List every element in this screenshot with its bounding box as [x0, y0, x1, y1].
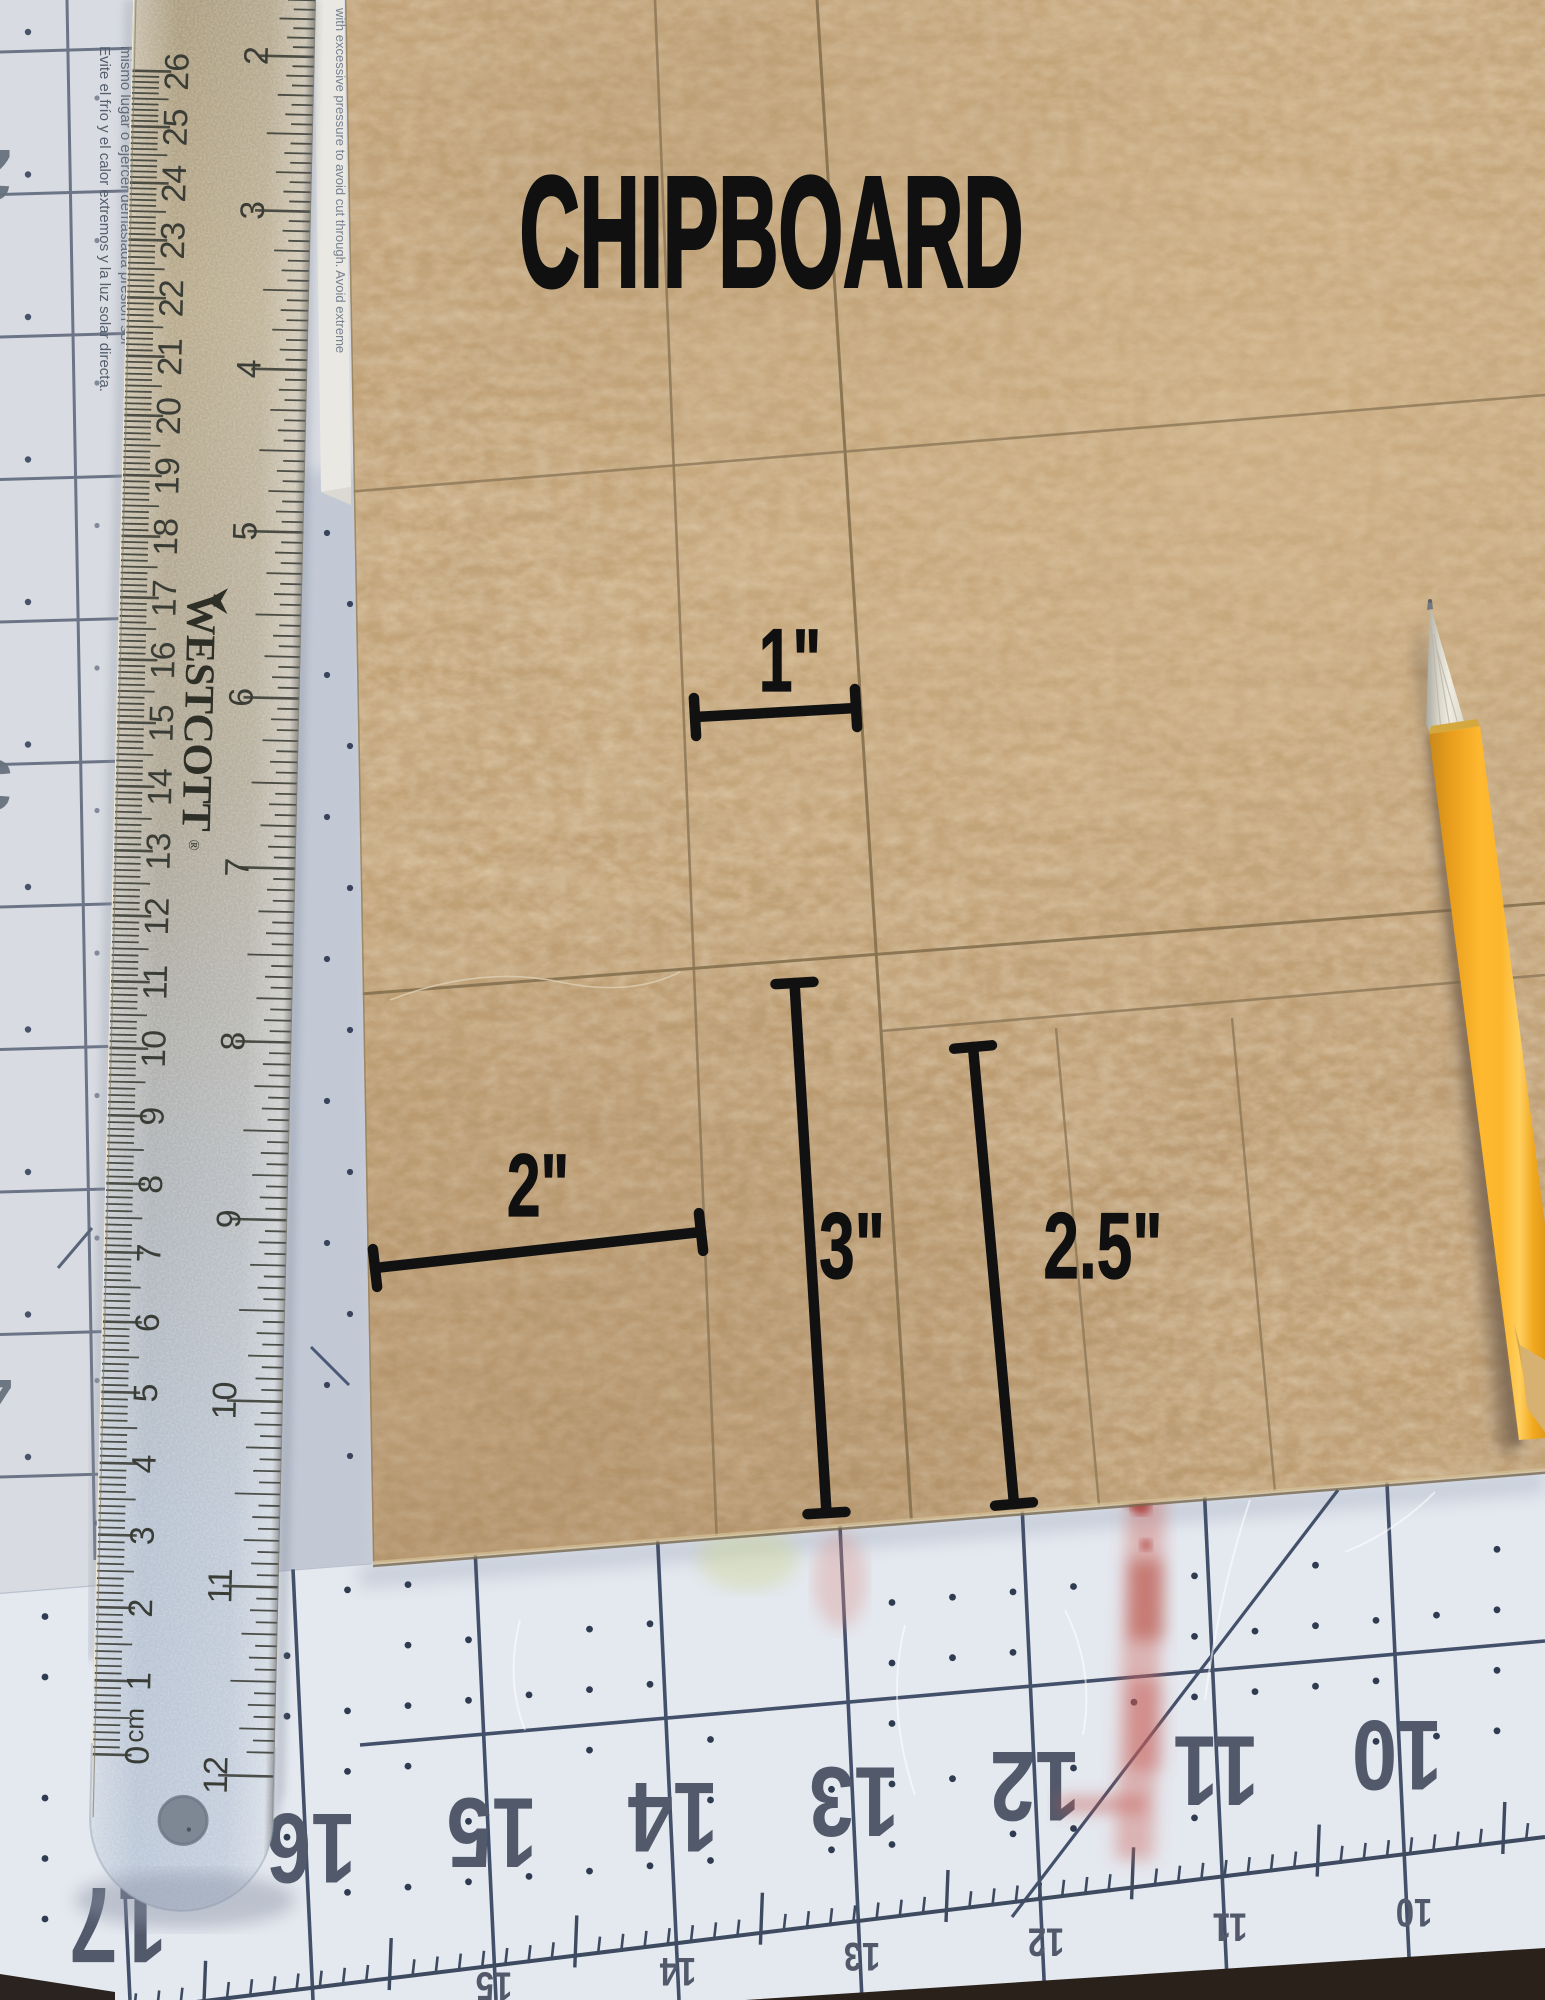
svg-text:7: 7: [130, 1243, 168, 1263]
svg-text:12: 12: [138, 897, 177, 936]
svg-text:20: 20: [150, 397, 189, 436]
svg-text:12: 12: [197, 1756, 236, 1795]
svg-text:10: 10: [206, 1381, 245, 1420]
svg-text:2.5": 2.5": [1043, 1194, 1162, 1299]
svg-text:24: 24: [155, 164, 194, 203]
svg-text:11: 11: [136, 964, 175, 1000]
svg-text:26: 26: [158, 52, 197, 91]
svg-text:2: 2: [237, 46, 275, 66]
svg-text:2: 2: [122, 1598, 160, 1618]
svg-text:13: 13: [809, 1746, 899, 1856]
svg-text:22: 22: [152, 279, 191, 318]
svg-text:14: 14: [659, 1949, 696, 1994]
svg-text:with excessive pressure to avo: with excessive pressure to avoid cut thr…: [333, 7, 348, 353]
svg-text:21: 21: [151, 338, 190, 377]
svg-text:3": 3": [819, 1194, 885, 1299]
svg-text:3: 3: [124, 1526, 162, 1546]
svg-text:25: 25: [157, 108, 196, 147]
svg-text:11: 11: [1213, 1905, 1248, 1950]
svg-text:10: 10: [135, 1030, 174, 1069]
svg-text:18: 18: [147, 517, 186, 556]
svg-text:WESTCOTT: WESTCOTT: [172, 593, 224, 832]
svg-text:3: 3: [0, 744, 12, 824]
svg-text:8: 8: [132, 1174, 170, 1194]
svg-text:23: 23: [154, 221, 193, 260]
svg-text:11: 11: [201, 1568, 240, 1604]
svg-text:0: 0: [118, 1745, 156, 1765]
svg-text:4: 4: [0, 1354, 12, 1434]
svg-text:5: 5: [226, 521, 264, 541]
svg-text:9: 9: [210, 1209, 248, 1229]
svg-text:10: 10: [1396, 1890, 1432, 1935]
svg-text:11: 11: [1173, 1715, 1259, 1825]
svg-text:9: 9: [133, 1106, 171, 1126]
svg-text:1": 1": [759, 611, 821, 710]
svg-text:8: 8: [214, 1031, 252, 1051]
svg-text:2: 2: [0, 134, 12, 214]
svg-text:CHIPBOARD: CHIPBOARD: [520, 144, 1024, 320]
svg-text:®: ®: [185, 839, 201, 851]
svg-text:3: 3: [234, 200, 272, 220]
svg-text:15: 15: [447, 1777, 537, 1887]
svg-text:14: 14: [628, 1761, 718, 1871]
svg-text:4: 4: [125, 1454, 163, 1474]
svg-text:1: 1: [120, 1671, 158, 1691]
svg-text:12: 12: [990, 1730, 1080, 1840]
svg-text:19: 19: [148, 457, 187, 496]
svg-text:13: 13: [139, 832, 178, 871]
svg-text:5: 5: [127, 1383, 165, 1403]
svg-text:2": 2": [507, 1136, 569, 1235]
svg-text:12: 12: [1028, 1920, 1064, 1965]
svg-text:15: 15: [476, 1964, 512, 2000]
svg-text:cm: cm: [119, 1708, 150, 1743]
svg-text:13: 13: [844, 1934, 880, 1979]
svg-text:6: 6: [222, 687, 260, 707]
svg-text:Evite el frío y el calor extre: Evite el frío y el calor extremos y la l…: [96, 46, 113, 392]
svg-text:6: 6: [129, 1313, 167, 1333]
svg-text:4: 4: [230, 359, 268, 379]
svg-text:10: 10: [1352, 1699, 1442, 1809]
svg-text:7: 7: [218, 857, 256, 877]
